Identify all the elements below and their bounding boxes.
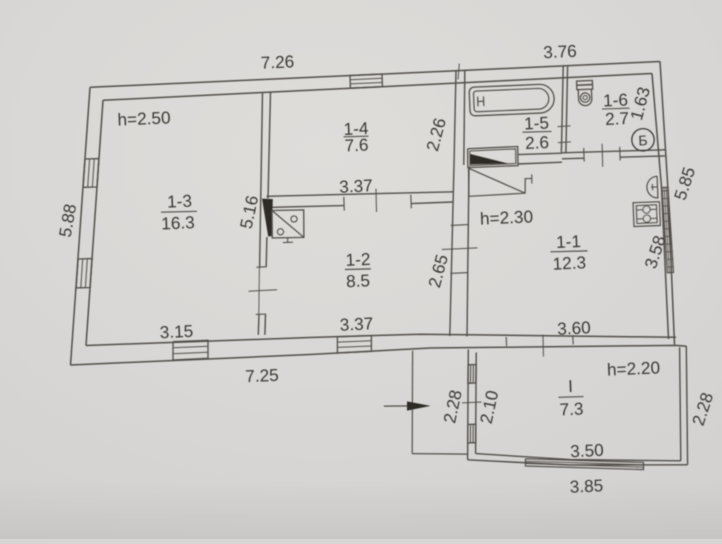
svg-text:1-1: 1-1 xyxy=(556,231,582,252)
svg-text:1-5: 1-5 xyxy=(524,112,550,133)
svg-text:Б: Б xyxy=(638,132,648,148)
svg-text:8.5: 8.5 xyxy=(346,270,371,291)
svg-text:h=2.20: h=2.20 xyxy=(607,357,661,379)
svg-text:3.85: 3.85 xyxy=(569,475,603,496)
svg-text:1-2: 1-2 xyxy=(345,249,371,270)
svg-text:7.26: 7.26 xyxy=(260,51,294,72)
svg-text:3.76: 3.76 xyxy=(543,41,577,62)
svg-text:3.15: 3.15 xyxy=(159,321,193,342)
svg-text:7.3: 7.3 xyxy=(559,398,584,419)
svg-text:7.25: 7.25 xyxy=(245,365,279,386)
svg-text:h=2.30: h=2.30 xyxy=(480,206,534,228)
svg-text:3.37: 3.37 xyxy=(339,175,373,196)
svg-text:2.6: 2.6 xyxy=(525,132,550,153)
svg-text:12.3: 12.3 xyxy=(552,252,586,273)
svg-text:16.3: 16.3 xyxy=(161,212,195,233)
svg-text:7.6: 7.6 xyxy=(344,134,369,155)
svg-text:3.60: 3.60 xyxy=(557,317,591,338)
svg-text:2.7: 2.7 xyxy=(605,108,630,129)
svg-text:3.50: 3.50 xyxy=(570,440,604,461)
svg-text:1-3: 1-3 xyxy=(167,191,193,212)
svg-text:3.37: 3.37 xyxy=(339,313,373,334)
svg-text:I: I xyxy=(568,376,574,396)
svg-text:h=2.50: h=2.50 xyxy=(117,107,171,129)
